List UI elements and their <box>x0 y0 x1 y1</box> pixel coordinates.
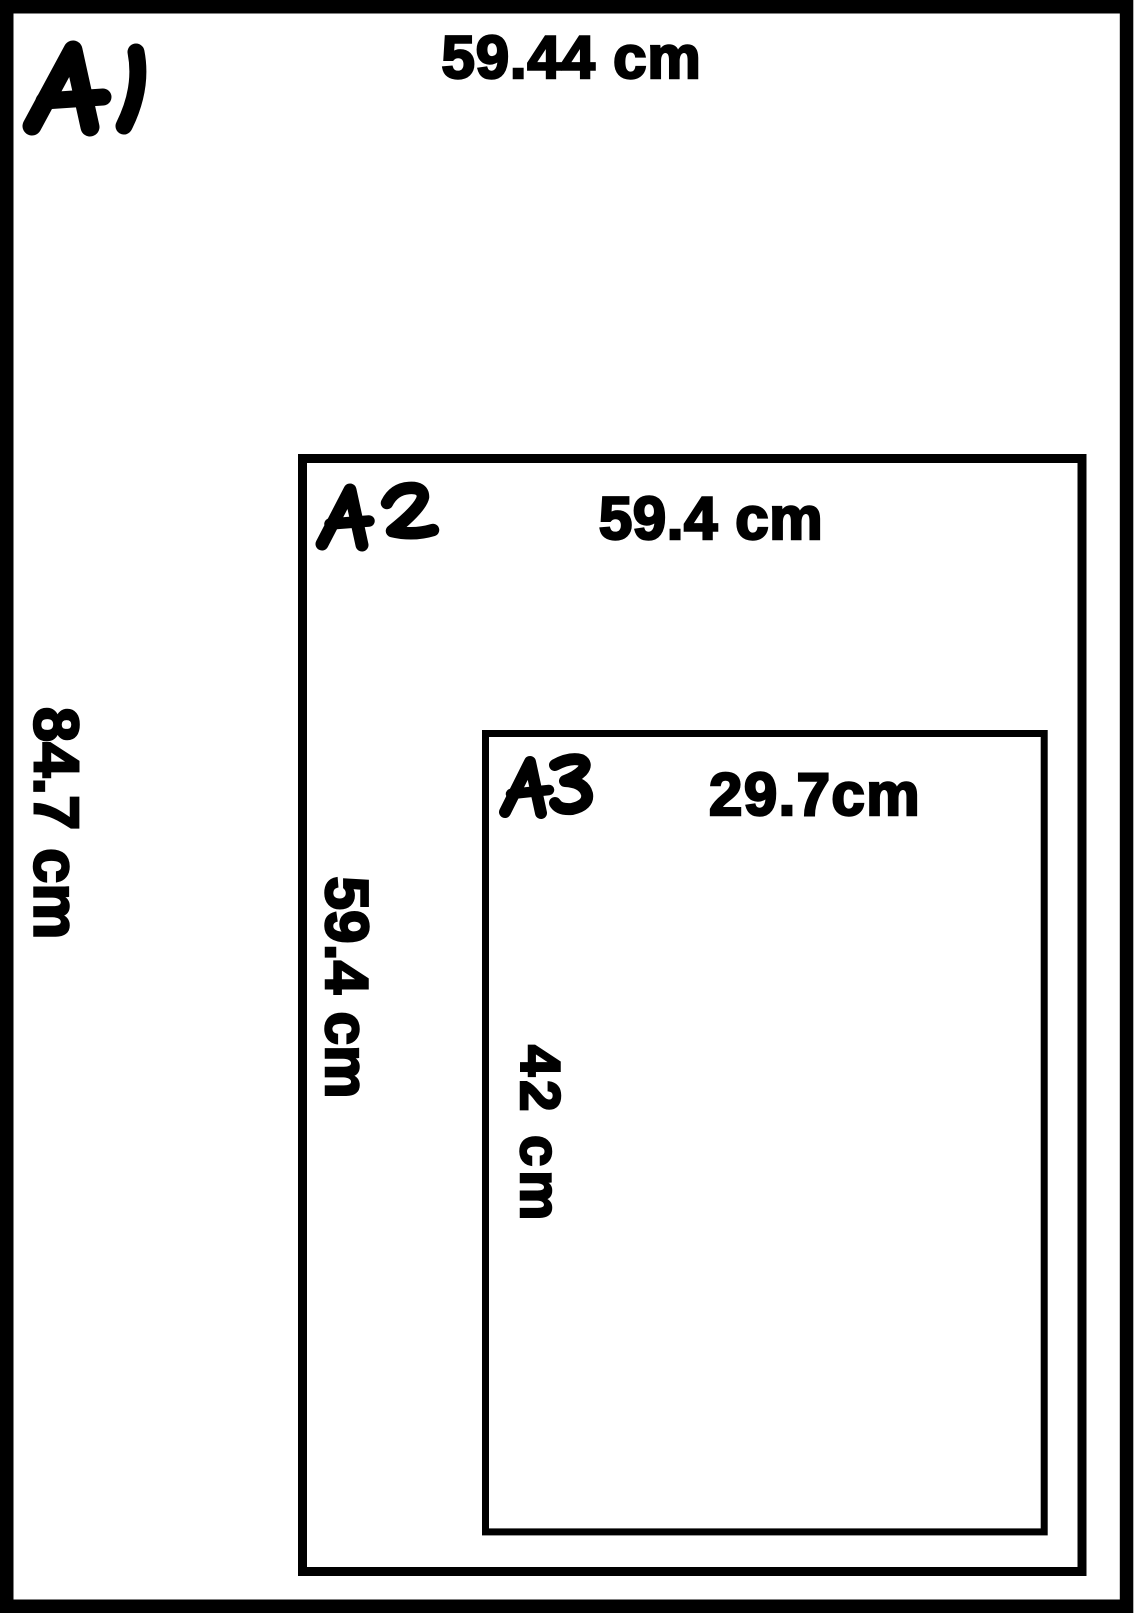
svg-text:42 cm: 42 cm <box>509 1045 572 1224</box>
svg-text:59.4 cm: 59.4 cm <box>313 877 380 1099</box>
svg-text:59.44 cm: 59.44 cm <box>442 24 702 91</box>
svg-text:59.4 cm: 59.4 cm <box>599 485 823 552</box>
svg-text:29.7cm: 29.7cm <box>709 761 921 828</box>
svg-text:84.7 cm: 84.7 cm <box>21 707 91 940</box>
